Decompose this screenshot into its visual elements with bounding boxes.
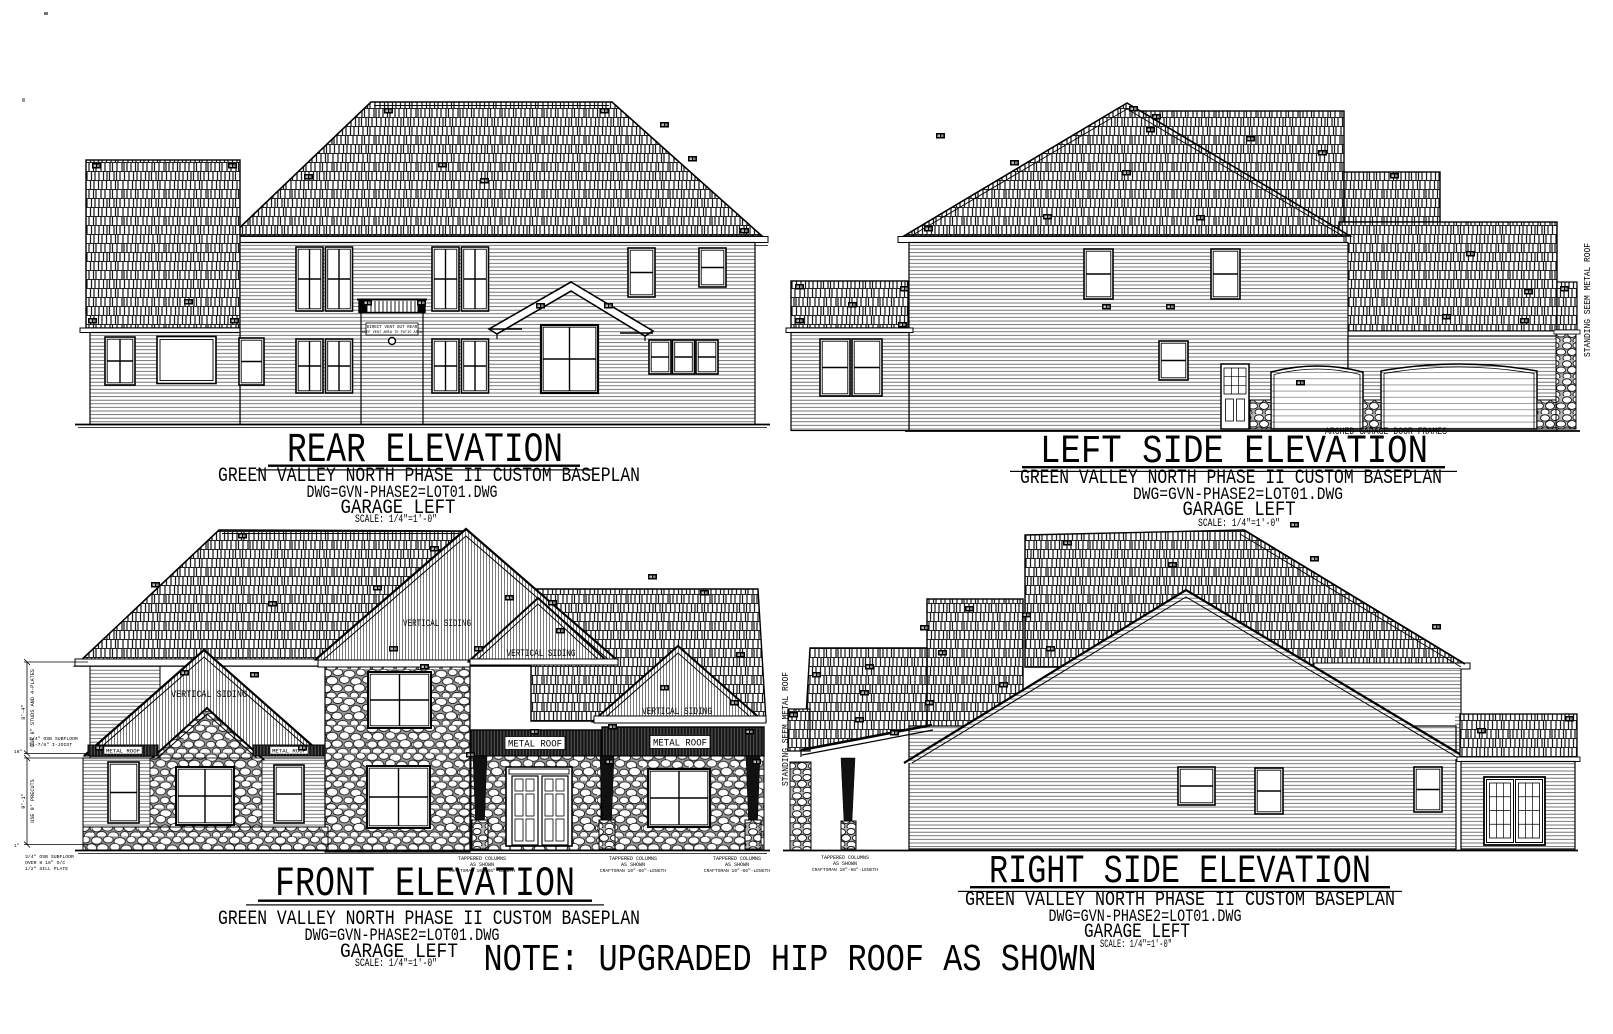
svg-text:SCALE: 1/4"=1'-0": SCALE: 1/4"=1'-0": [355, 958, 437, 970]
svg-text:SCALE: 1/4"=1'-0": SCALE: 1/4"=1'-0": [355, 514, 437, 526]
svg-text:10": 10": [14, 749, 22, 755]
svg-text:8'-4": 8'-4": [21, 704, 27, 720]
svg-text:AS SHOWN: AS SHOWN: [833, 861, 857, 867]
svg-text:DIRECT VENT OUT REAR: DIRECT VENT OUT REAR: [367, 326, 418, 330]
svg-text:METAL ROOF: METAL ROOF: [653, 738, 707, 750]
svg-text:STANDING SEEM METAL ROOF: STANDING SEEM METAL ROOF: [1582, 243, 1593, 357]
svg-text:USE 9' PRECUTS: USE 9' PRECUTS: [30, 779, 36, 823]
svg-text:CRAFTSMAN 10"-66"-LENGTH: CRAFTSMAN 10"-66"-LENGTH: [704, 868, 770, 874]
svg-text:METAL ROOF: METAL ROOF: [508, 739, 562, 751]
svg-text:METAL ROOF: METAL ROOF: [106, 748, 140, 755]
svg-text:1/2" SILL PLATE: 1/2" SILL PLATE: [25, 866, 68, 872]
svg-text:SCALE: 1/4"=1'-0": SCALE: 1/4"=1'-0": [1198, 518, 1280, 530]
svg-text:OVER 8 16" O/C: OVER 8 16" O/C: [25, 860, 65, 866]
svg-text:AS SHOWN: AS SHOWN: [621, 862, 645, 868]
svg-text:CRAFTSMAN 10"-66"-LENGTH: CRAFTSMAN 10"-66"-LENGTH: [812, 867, 878, 873]
svg-text:STANDING SEEM METAL ROOF: STANDING SEEM METAL ROOF: [780, 672, 791, 786]
svg-text:NOTE: UPGRADED HIP ROOF AS SHO: NOTE: UPGRADED HIP ROOF AS SHOWN: [484, 939, 1097, 982]
svg-text:AS SHOWN: AS SHOWN: [725, 862, 749, 868]
svg-text:SCALE: 1/4"=1'-0": SCALE: 1/4"=1'-0": [1100, 939, 1172, 951]
svg-text:3/4" OSB SUBFLOOR: 3/4" OSB SUBFLOOR: [29, 736, 78, 742]
svg-text:1": 1": [14, 843, 20, 849]
svg-text:3/4" OSB SUBFLOOR: 3/4" OSB SUBFLOOR: [25, 854, 74, 860]
svg-text:KEEP VENT AREA TO PATIO AREA: KEEP VENT AREA TO PATIO AREA: [362, 331, 423, 335]
svg-text:11-7/8" I-JOIST: 11-7/8" I-JOIST: [29, 742, 72, 748]
svg-text:VERTICAL SIDING: VERTICAL SIDING: [403, 619, 471, 630]
svg-text:VERTICAL SIDING: VERTICAL SIDING: [171, 690, 247, 701]
svg-text:USE 8" STUDS AND 4-PLATES: USE 8" STUDS AND 4-PLATES: [30, 669, 36, 747]
svg-text:VERTICAL SIDING: VERTICAL SIDING: [507, 649, 576, 660]
svg-text:CRAFTSMAN 10"-66"-LENGTH: CRAFTSMAN 10"-66"-LENGTH: [600, 868, 666, 874]
svg-text:9'-1": 9'-1": [21, 793, 27, 809]
